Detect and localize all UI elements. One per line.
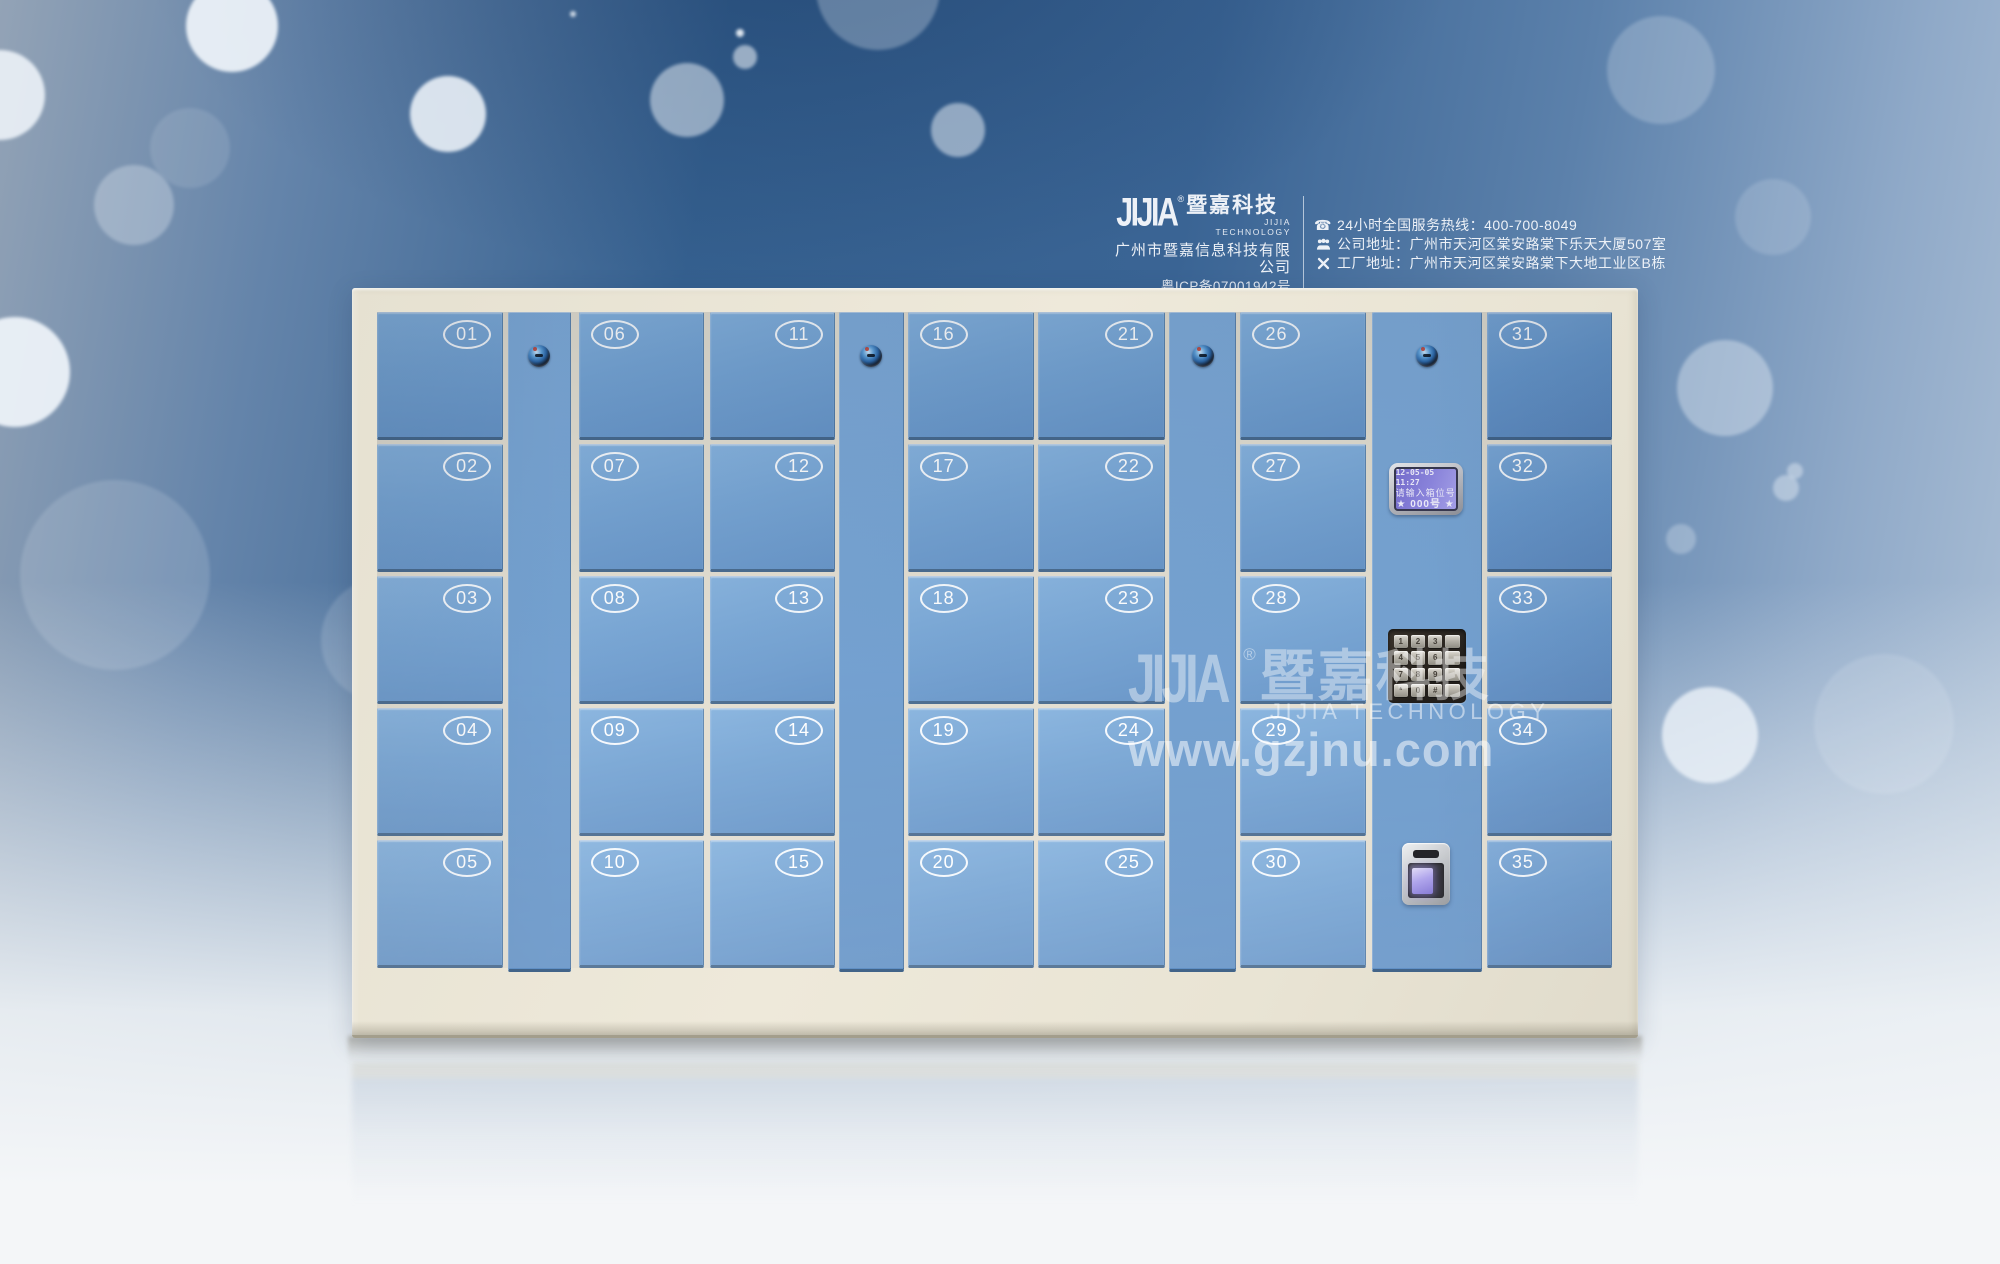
keypad-key-3[interactable]: 3 — [1428, 635, 1442, 648]
locker-door-28[interactable]: 28 — [1240, 576, 1365, 704]
door-number-badge: 09 — [591, 716, 639, 745]
bokeh-circle — [410, 76, 486, 152]
locker-door-24[interactable]: 24 — [1038, 708, 1165, 836]
locker-door-16[interactable]: 16 — [908, 312, 1034, 440]
door-number-badge: 19 — [920, 716, 968, 745]
bokeh-circle — [931, 103, 985, 157]
door-number-badge: 27 — [1252, 452, 1300, 481]
keypad-key-blank[interactable] — [1445, 635, 1459, 648]
locker-door-27[interactable]: 27 — [1240, 444, 1365, 572]
bokeh-circle — [733, 45, 757, 69]
lcd-text-line2: 请输入箱位号 — [1396, 488, 1456, 499]
contact-line: 工厂地址：广州市天河区棠安路棠下大地工业区B栋 — [1314, 255, 1666, 271]
locker-door-03[interactable]: 03 — [377, 576, 503, 704]
bokeh-circle — [736, 29, 744, 37]
keypad-key-8[interactable]: 8 — [1411, 668, 1425, 681]
locker-door-23[interactable]: 23 — [1038, 576, 1165, 704]
locker-door-14[interactable]: 14 — [710, 708, 835, 836]
door-number-badge: 33 — [1499, 584, 1547, 613]
door-number-badge: 13 — [775, 584, 823, 613]
locker-door-06[interactable]: 06 — [579, 312, 704, 440]
locker-door-33[interactable]: 33 — [1487, 576, 1612, 704]
locker-door-07[interactable]: 07 — [579, 444, 704, 572]
locker-door-21[interactable]: 21 — [1038, 312, 1165, 440]
keyhole-lock-icon[interactable] — [528, 345, 550, 367]
company-name: 广州市暨嘉信息科技有限公司 — [1103, 242, 1291, 276]
registered-mark-icon: ® — [1177, 194, 1184, 204]
locker-door-13[interactable]: 13 — [710, 576, 835, 704]
locker-door-15[interactable]: 15 — [710, 840, 835, 968]
keypad-key-5[interactable]: 5 — [1411, 651, 1425, 664]
door-number-badge: 01 — [443, 320, 491, 349]
contact-info: ☎24小时全国服务热线：400-700-8049公司地址：广州市天河区棠安路棠下… — [1314, 194, 1666, 294]
card-slot — [1413, 850, 1439, 858]
keyhole-lock-icon[interactable] — [1416, 345, 1438, 367]
fingerprint-sensor-window[interactable] — [1412, 868, 1433, 894]
locker-column: 2627282930 — [1240, 312, 1365, 968]
locker-door-02[interactable]: 02 — [377, 444, 503, 572]
bokeh-circle — [1677, 340, 1773, 436]
bokeh-circle — [1662, 687, 1758, 783]
lock-strip-3 — [1169, 312, 1237, 972]
fingerprint-reader[interactable] — [1402, 843, 1450, 905]
tools-icon — [1314, 257, 1332, 270]
header: JIJIA ® 暨嘉科技 JIJIA TECHNOLOGY 广州市暨嘉信息科技有… — [1103, 194, 1666, 294]
keyhole-lock-icon[interactable] — [1192, 345, 1214, 367]
lock-strip-1 — [508, 312, 571, 972]
brand-name-cn: 暨嘉科技 — [1186, 194, 1278, 217]
locker-door-04[interactable]: 04 — [377, 708, 503, 836]
brand-name-en: JIJIA TECHNOLOGY — [1186, 217, 1291, 237]
door-number-badge: 31 — [1499, 320, 1547, 349]
bokeh-circle — [816, 0, 940, 50]
bokeh-circle — [1666, 524, 1696, 554]
door-number-badge: 24 — [1105, 716, 1153, 745]
locker-door-12[interactable]: 12 — [710, 444, 835, 572]
lock-strip-2 — [839, 312, 904, 972]
cabinet-floor-shadow — [348, 1036, 1642, 1062]
bokeh-circle — [1607, 16, 1715, 124]
keypad-key-6[interactable]: 6 — [1428, 651, 1442, 664]
bokeh-circle — [20, 480, 210, 670]
keypad-key-blank[interactable] — [1445, 651, 1459, 664]
door-number-badge: 12 — [775, 452, 823, 481]
locker-door-10[interactable]: 10 — [579, 840, 704, 968]
keypad-key-9[interactable]: 9 — [1428, 668, 1442, 681]
door-number-badge: 03 — [443, 584, 491, 613]
door-number-badge: 34 — [1499, 716, 1547, 745]
door-number-badge: 25 — [1105, 848, 1153, 877]
scene: JIJIA ® 暨嘉科技 JIJIA TECHNOLOGY 广州市暨嘉信息科技有… — [0, 0, 2000, 1264]
door-number-badge: 06 — [591, 320, 639, 349]
keypad-key-1[interactable]: 1 — [1394, 635, 1408, 648]
door-number-badge: 10 — [591, 848, 639, 877]
locker-door-09[interactable]: 09 — [579, 708, 704, 836]
jijia-logotype: JIJIA — [1116, 194, 1176, 231]
header-brand-block: JIJIA ® 暨嘉科技 JIJIA TECHNOLOGY 广州市暨嘉信息科技有… — [1103, 194, 1291, 294]
locker-column: 3132333435 — [1487, 312, 1612, 968]
door-number-badge: 14 — [775, 716, 823, 745]
door-number-badge: 35 — [1499, 848, 1547, 877]
locker-cabinet: 0102030405060708091011121314151617181920… — [352, 288, 1638, 1038]
locker-door-26[interactable]: 26 — [1240, 312, 1365, 440]
brand-logo: JIJIA ® 暨嘉科技 JIJIA TECHNOLOGY — [1103, 194, 1291, 237]
door-number-badge: 16 — [920, 320, 968, 349]
keypad-key-blank[interactable] — [1445, 668, 1459, 681]
locker-door-25[interactable]: 25 — [1038, 840, 1165, 968]
door-number-badge: 18 — [920, 584, 968, 613]
door-number-badge: 21 — [1105, 320, 1153, 349]
bokeh-circle — [186, 0, 278, 72]
door-number-badge: 08 — [591, 584, 639, 613]
lcd-display: 12-05-05 11:27请输入箱位号★ 000号 ★ — [1389, 463, 1463, 515]
keypad-key-blank[interactable] — [1445, 684, 1459, 697]
contact-text: 24小时全国服务热线：400-700-8049 — [1337, 217, 1577, 233]
keypad-key-#[interactable]: # — [1428, 684, 1442, 697]
fingerprint-recess — [1408, 863, 1444, 898]
bokeh-circle — [1735, 179, 1811, 255]
door-number-badge: 04 — [443, 716, 491, 745]
door-number-badge: 29 — [1252, 716, 1300, 745]
door-number-badge: 22 — [1105, 452, 1153, 481]
bokeh-circle — [1773, 475, 1799, 501]
lcd-screen: 12-05-05 11:27请输入箱位号★ 000号 ★ — [1394, 467, 1458, 511]
locker-column: 2122232425 — [1038, 312, 1165, 968]
contact-line: 公司地址：广州市天河区棠安路棠下乐天大厦507室 — [1314, 236, 1666, 252]
locker-column: 1617181920 — [908, 312, 1034, 968]
bokeh-circle — [570, 11, 576, 17]
locker-column: 0607080910 — [579, 312, 704, 968]
people-icon — [1314, 238, 1332, 251]
locker-door-20[interactable]: 20 — [908, 840, 1034, 968]
locker-grid: 0102030405060708091011121314151617181920… — [377, 312, 1612, 968]
keypad-key-4[interactable]: 4 — [1394, 651, 1408, 664]
door-number-badge: 26 — [1252, 320, 1300, 349]
locker-door-31[interactable]: 31 — [1487, 312, 1612, 440]
phone-icon: ☎ — [1314, 217, 1332, 233]
keypad-key-7[interactable]: 7 — [1394, 668, 1408, 681]
locker-door-08[interactable]: 08 — [579, 576, 704, 704]
locker-door-29[interactable]: 29 — [1240, 708, 1365, 836]
door-number-badge: 30 — [1252, 848, 1300, 877]
door-number-badge: 20 — [920, 848, 968, 877]
locker-door-32[interactable]: 32 — [1487, 444, 1612, 572]
contact-text: 工厂地址：广州市天河区棠安路棠下大地工业区B栋 — [1337, 255, 1666, 271]
locker-door-19[interactable]: 19 — [908, 708, 1034, 836]
locker-column: 1112131415 — [710, 312, 835, 968]
keypad-key-2[interactable]: 2 — [1411, 635, 1425, 648]
lcd-text-line3: ★ 000号 ★ — [1397, 499, 1455, 511]
keypad-key-0[interactable]: 0 — [1411, 684, 1425, 697]
control-panel: 12-05-05 11:27请输入箱位号★ 000号 ★123456789*0# — [1372, 312, 1482, 972]
bokeh-circle — [650, 63, 724, 137]
door-number-badge: 11 — [775, 320, 823, 349]
bokeh-circle — [0, 50, 45, 140]
locker-door-35[interactable]: 35 — [1487, 840, 1612, 968]
header-divider — [1303, 196, 1304, 294]
door-number-badge: 07 — [591, 452, 639, 481]
cabinet-reflection — [352, 1062, 1638, 1247]
contact-line: ☎24小时全国服务热线：400-700-8049 — [1314, 217, 1666, 233]
locker-door-11[interactable]: 11 — [710, 312, 835, 440]
keypad: 123456789*0# — [1388, 629, 1466, 703]
locker-door-22[interactable]: 22 — [1038, 444, 1165, 572]
lcd-text-line1: 12-05-05 11:27 — [1396, 468, 1456, 488]
bokeh-circle — [150, 108, 230, 188]
door-number-badge: 28 — [1252, 584, 1300, 613]
locker-door-17[interactable]: 17 — [908, 444, 1034, 572]
keypad-key-*[interactable]: * — [1394, 684, 1408, 697]
door-number-badge: 05 — [443, 848, 491, 877]
locker-door-34[interactable]: 34 — [1487, 708, 1612, 836]
door-number-badge: 23 — [1105, 584, 1153, 613]
door-number-badge: 02 — [443, 452, 491, 481]
bokeh-circle — [1787, 463, 1803, 479]
door-number-badge: 15 — [775, 848, 823, 877]
keyhole-lock-icon[interactable] — [860, 345, 882, 367]
door-number-badge: 17 — [920, 452, 968, 481]
locker-door-30[interactable]: 30 — [1240, 840, 1365, 968]
locker-column: 0102030405 — [377, 312, 503, 968]
bokeh-circle — [1814, 654, 1954, 794]
contact-text: 公司地址：广州市天河区棠安路棠下乐天大厦507室 — [1337, 236, 1666, 252]
bokeh-circle — [94, 165, 174, 245]
locker-door-18[interactable]: 18 — [908, 576, 1034, 704]
bokeh-circle — [0, 317, 70, 427]
locker-door-01[interactable]: 01 — [377, 312, 503, 440]
locker-door-05[interactable]: 05 — [377, 840, 503, 968]
door-number-badge: 32 — [1499, 452, 1547, 481]
